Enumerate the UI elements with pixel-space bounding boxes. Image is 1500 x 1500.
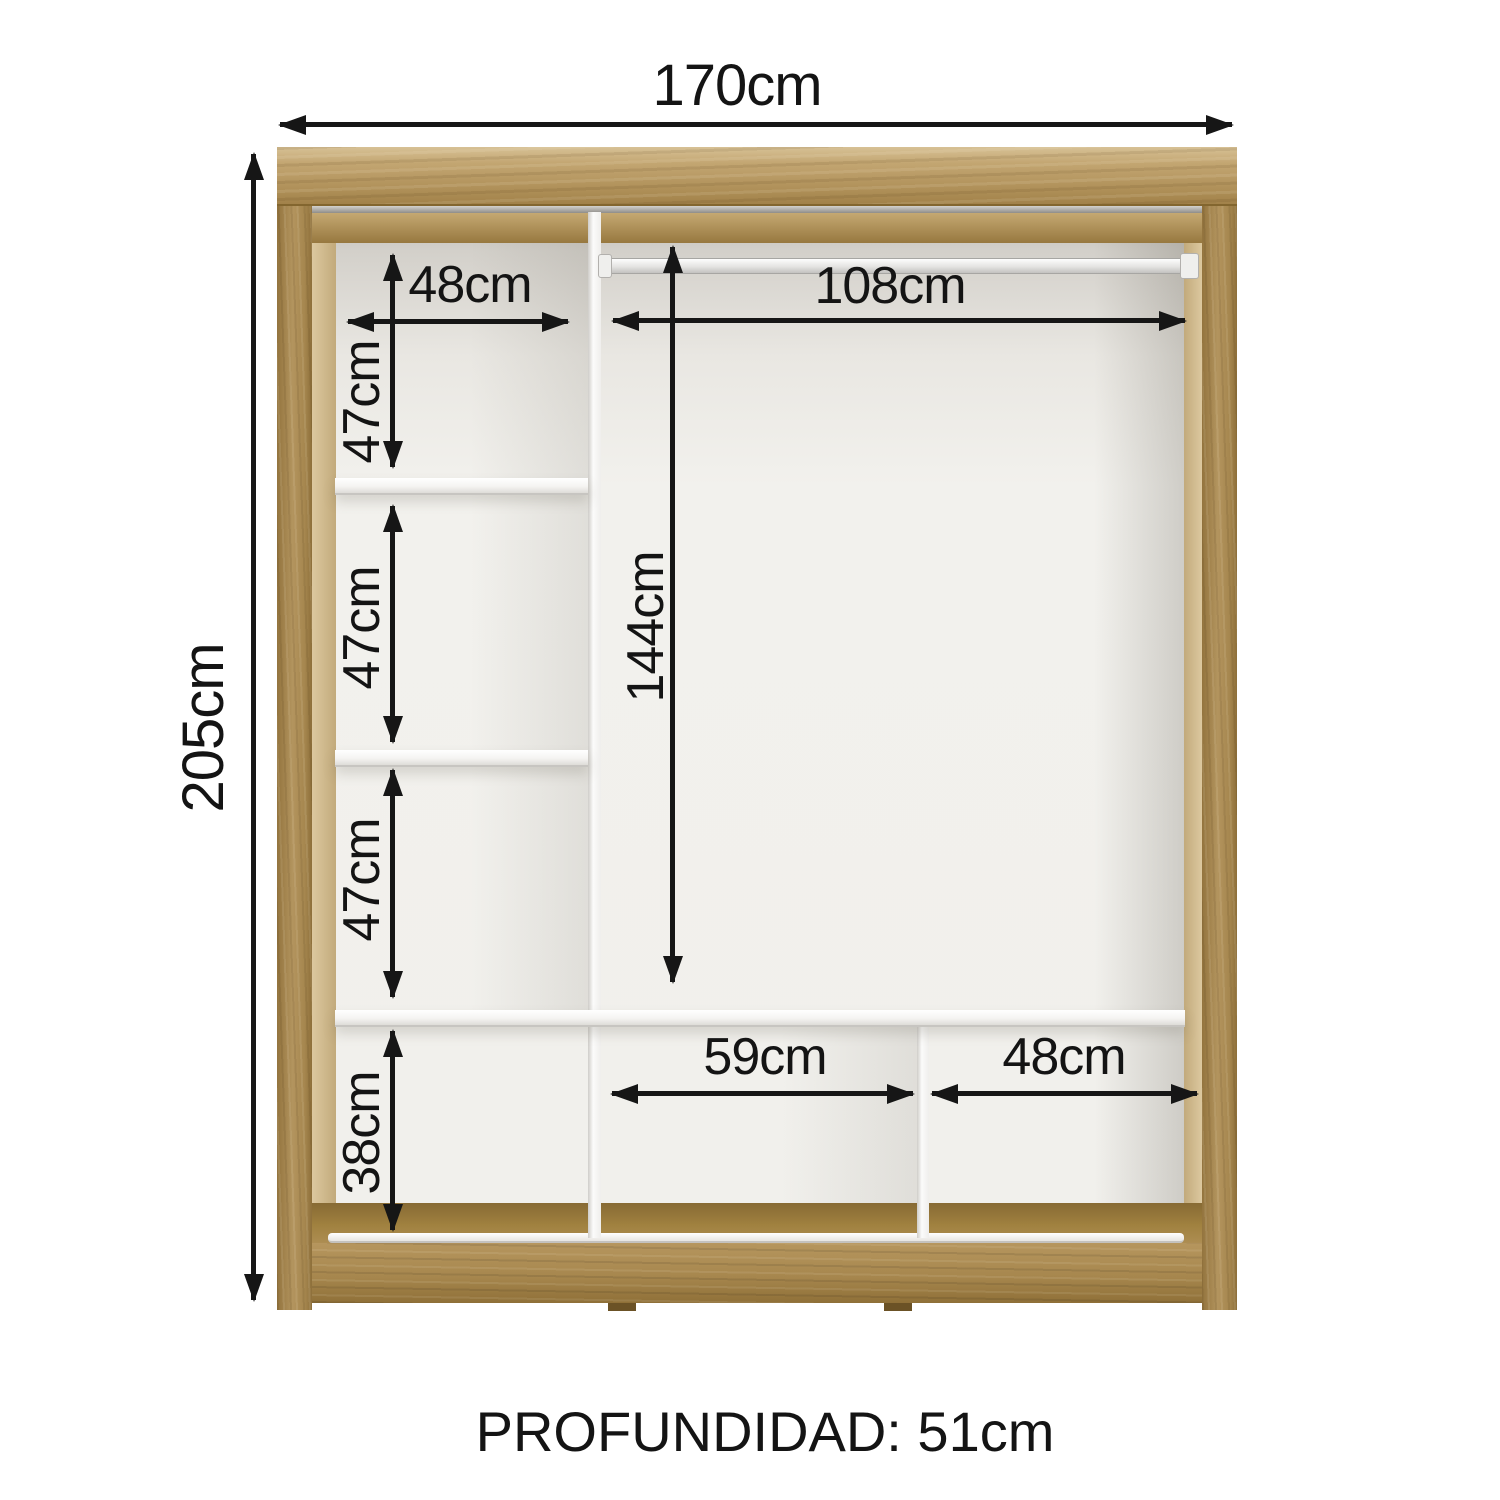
dim-arrow-rod-width bbox=[613, 318, 1185, 323]
foot-right-middle bbox=[884, 1303, 912, 1311]
dim-label-depth: PROFUNDIDAD: 51cm bbox=[476, 1404, 1055, 1460]
dim-label-left-compartment-1: 47cm bbox=[336, 340, 388, 463]
interior-back bbox=[312, 206, 1202, 1243]
left-shelf-1 bbox=[335, 478, 588, 495]
bottom-divider bbox=[917, 1025, 929, 1238]
left-shelf-2 bbox=[335, 750, 588, 767]
dim-label-bottom-middle-width: 59cm bbox=[703, 1031, 826, 1083]
dim-arrow-bottom-middle-width bbox=[612, 1091, 913, 1096]
rod-bracket-right bbox=[1180, 253, 1199, 279]
bottom-door-track bbox=[328, 1233, 1184, 1243]
center-divider bbox=[588, 212, 601, 1238]
rod-bracket-left bbox=[598, 254, 612, 278]
wardrobe-dimension-diagram: 170cm 205cm 48cm 47cm 47cm 47cm 38cm 108… bbox=[0, 0, 1500, 1500]
base-kick bbox=[312, 1243, 1202, 1303]
top-rail bbox=[277, 147, 1237, 206]
ceiling-panel bbox=[312, 212, 1202, 243]
dim-label-overall-width: 170cm bbox=[652, 57, 821, 115]
right-side-panel bbox=[1202, 147, 1237, 1310]
dim-arrow-left-shelf-width bbox=[348, 319, 568, 324]
dim-label-overall-height: 205cm bbox=[175, 643, 233, 812]
dim-label-bottom-right-width: 48cm bbox=[1002, 1031, 1125, 1083]
left-column-shadow bbox=[470, 242, 588, 1010]
dim-label-left-compartment-4: 38cm bbox=[336, 1071, 388, 1194]
dim-label-left-shelf-width: 48cm bbox=[408, 259, 531, 311]
dim-arrow-overall-width bbox=[280, 122, 1232, 127]
dim-label-rod-width: 108cm bbox=[814, 260, 965, 312]
dim-label-left-compartment-3: 47cm bbox=[336, 818, 388, 941]
top-door-track bbox=[312, 206, 1202, 213]
foot-left-middle bbox=[608, 1303, 636, 1311]
dim-arrow-overall-height bbox=[251, 154, 256, 1300]
dim-label-hanging-height: 144cm bbox=[620, 551, 672, 702]
right-inner-face bbox=[1184, 206, 1202, 1203]
dim-arrow-bottom-right-width bbox=[932, 1091, 1197, 1096]
bottom-shelf bbox=[335, 1010, 1185, 1027]
left-side-panel bbox=[277, 147, 312, 1310]
dim-label-left-compartment-2: 47cm bbox=[336, 566, 388, 689]
